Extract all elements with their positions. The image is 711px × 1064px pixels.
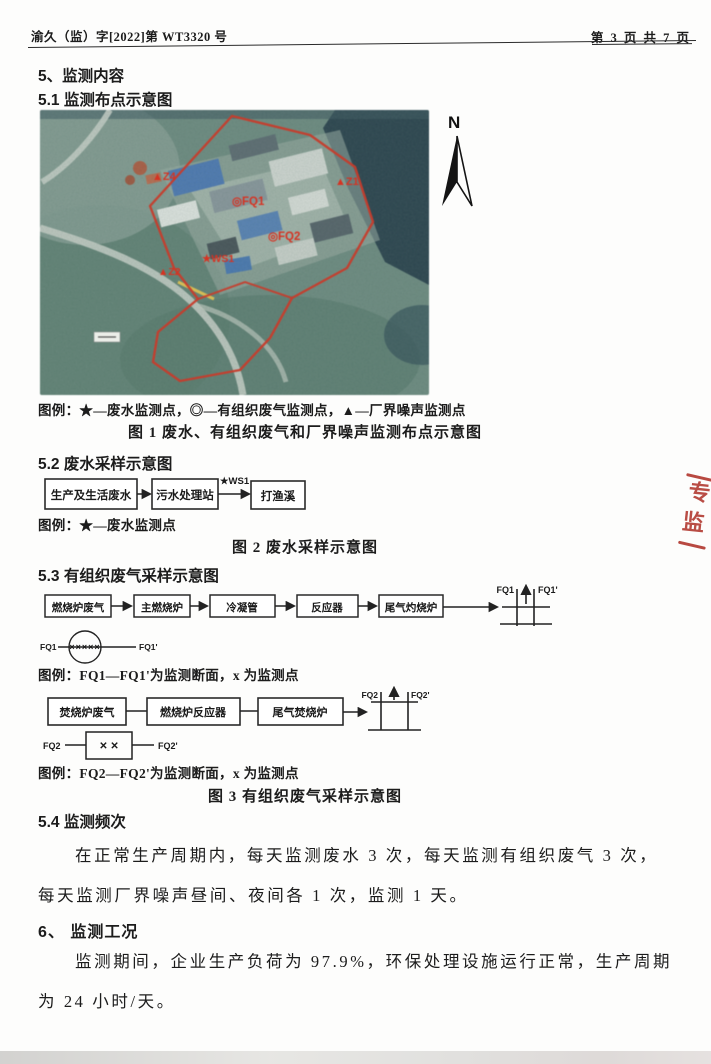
map-label-fq1: ◎FQ1: [232, 196, 265, 208]
flow1-node-3: 反应器: [311, 601, 343, 614]
stack2-label-right: FQ2': [411, 690, 430, 700]
red-stamp-partial: 专 监: [671, 468, 711, 564]
stack1-label-right: FQ1': [538, 585, 558, 595]
duct-section-symbol-2: FQ2 ✕ ✕ FQ2': [40, 728, 210, 764]
figure2-legend: 图例：★—废水监测点: [38, 514, 176, 534]
section2-right-label: FQ2': [158, 741, 178, 751]
stamp-bottom-bar: [678, 541, 706, 550]
figure2-caption: 图 2 废水采样示意图: [40, 536, 570, 557]
flow2-node-0: 焚烧炉废气: [59, 705, 115, 719]
conditions-paragraph-line2: 为 24 小时/天。: [38, 988, 176, 1012]
section-5-1-title: 5.1 监测布点示意图: [38, 88, 172, 110]
flow-node-sewage-station: 污水处理站: [156, 488, 214, 502]
section1-right-label: FQ1': [139, 642, 158, 652]
stamp-char-1: 专: [687, 481, 711, 505]
frequency-paragraph-line2: 每天监测厂界噪声昼间、夜间各 1 次，监测 1 天。: [38, 882, 469, 906]
figure1-caption: 图 1 废水、有组织废气和厂界噪声监测布点示意图: [40, 421, 570, 442]
map-label-z2: ▲Z2: [158, 266, 181, 278]
document-page: 渝久（监）字[2022]第 WT3320 号 第 3 页 共 7 页 5、监测内…: [0, 0, 711, 1064]
flow1-node-0: 燃烧炉废气: [52, 601, 105, 614]
north-arrow-right-half: [457, 136, 472, 206]
header-doc-number: 渝久（监）字[2022]第 WT3320 号: [31, 26, 227, 45]
map-label-z1: ▲Z1: [335, 176, 359, 188]
section-6-title: 6、 监测工况: [38, 918, 138, 942]
stamp-char-2: 监: [681, 511, 705, 535]
flow1-node-1: 主燃烧炉: [141, 601, 183, 614]
section-5-4-title: 5.4 监测频次: [38, 810, 126, 832]
section1-x-marks: ×××××: [69, 642, 100, 652]
section-5-title: 5、监测内容: [38, 64, 124, 86]
stack2-label-left: FQ2: [361, 690, 378, 700]
figure3-legend-1: 图例：FQ1—FQ1'为监测断面，x 为监测点: [38, 664, 299, 684]
conditions-paragraph-line1: 监测期间，企业生产负荷为 97.9%，环保处理设施运行正常，生产周期: [75, 948, 672, 972]
map-texture-light: [40, 110, 429, 395]
map-label-ws1: ★WS1: [202, 253, 234, 265]
figure3-caption: 图 3 有组织废气采样示意图: [40, 785, 570, 806]
section-5-2-title: 5.2 废水采样示意图: [38, 452, 172, 474]
scan-shadow-strip: [0, 1051, 711, 1064]
flow-node-wastewater: 生产及生活废水: [51, 488, 132, 502]
satellite-map-svg: ▲Z4 ◎FQ1 ▲Z1 ◎FQ2 ★WS1 ▲Z2: [40, 110, 429, 395]
stack1-label-left: FQ1: [496, 585, 514, 595]
map-label-z4: ▲Z4: [152, 171, 177, 183]
flow-node-creek: 打渔溪: [261, 489, 296, 503]
map-label-fq2: ◎FQ2: [268, 231, 300, 243]
section2-left-label: FQ2: [43, 741, 61, 751]
figure1-legend: 图例：★—废水监测点，◎—有组织废气监测点，▲—厂界噪声监测点: [38, 399, 466, 419]
section2-x-marks: ✕ ✕: [99, 741, 119, 752]
section1-left-label: FQ1: [40, 642, 57, 652]
north-arrow-left-half: [442, 136, 457, 206]
figure3-legend-2: 图例：FQ2—FQ2'为监测断面，x 为监测点: [38, 762, 299, 782]
north-arrow-icon: N: [430, 108, 485, 218]
flow-arrow-label-ws1: ★WS1: [220, 476, 250, 487]
flow1-node-4: 尾气灼烧炉: [385, 601, 438, 614]
frequency-paragraph-line1: 在正常生产周期内，每天监测废水 3 次，每天监测有组织废气 3 次，: [75, 842, 658, 866]
flow2-node-1: 燃烧炉反应器: [159, 705, 227, 719]
flow1-node-2: 冷凝管: [226, 601, 258, 614]
site-satellite-map: ▲Z4 ◎FQ1 ▲Z1 ◎FQ2 ★WS1 ▲Z2: [40, 110, 429, 395]
wastewater-flowchart: 生产及生活废水 污水处理站 ★WS1 打渔溪: [42, 472, 312, 516]
compass-n-label: N: [448, 113, 460, 132]
flow2-node-2: 尾气焚烧炉: [272, 705, 328, 719]
